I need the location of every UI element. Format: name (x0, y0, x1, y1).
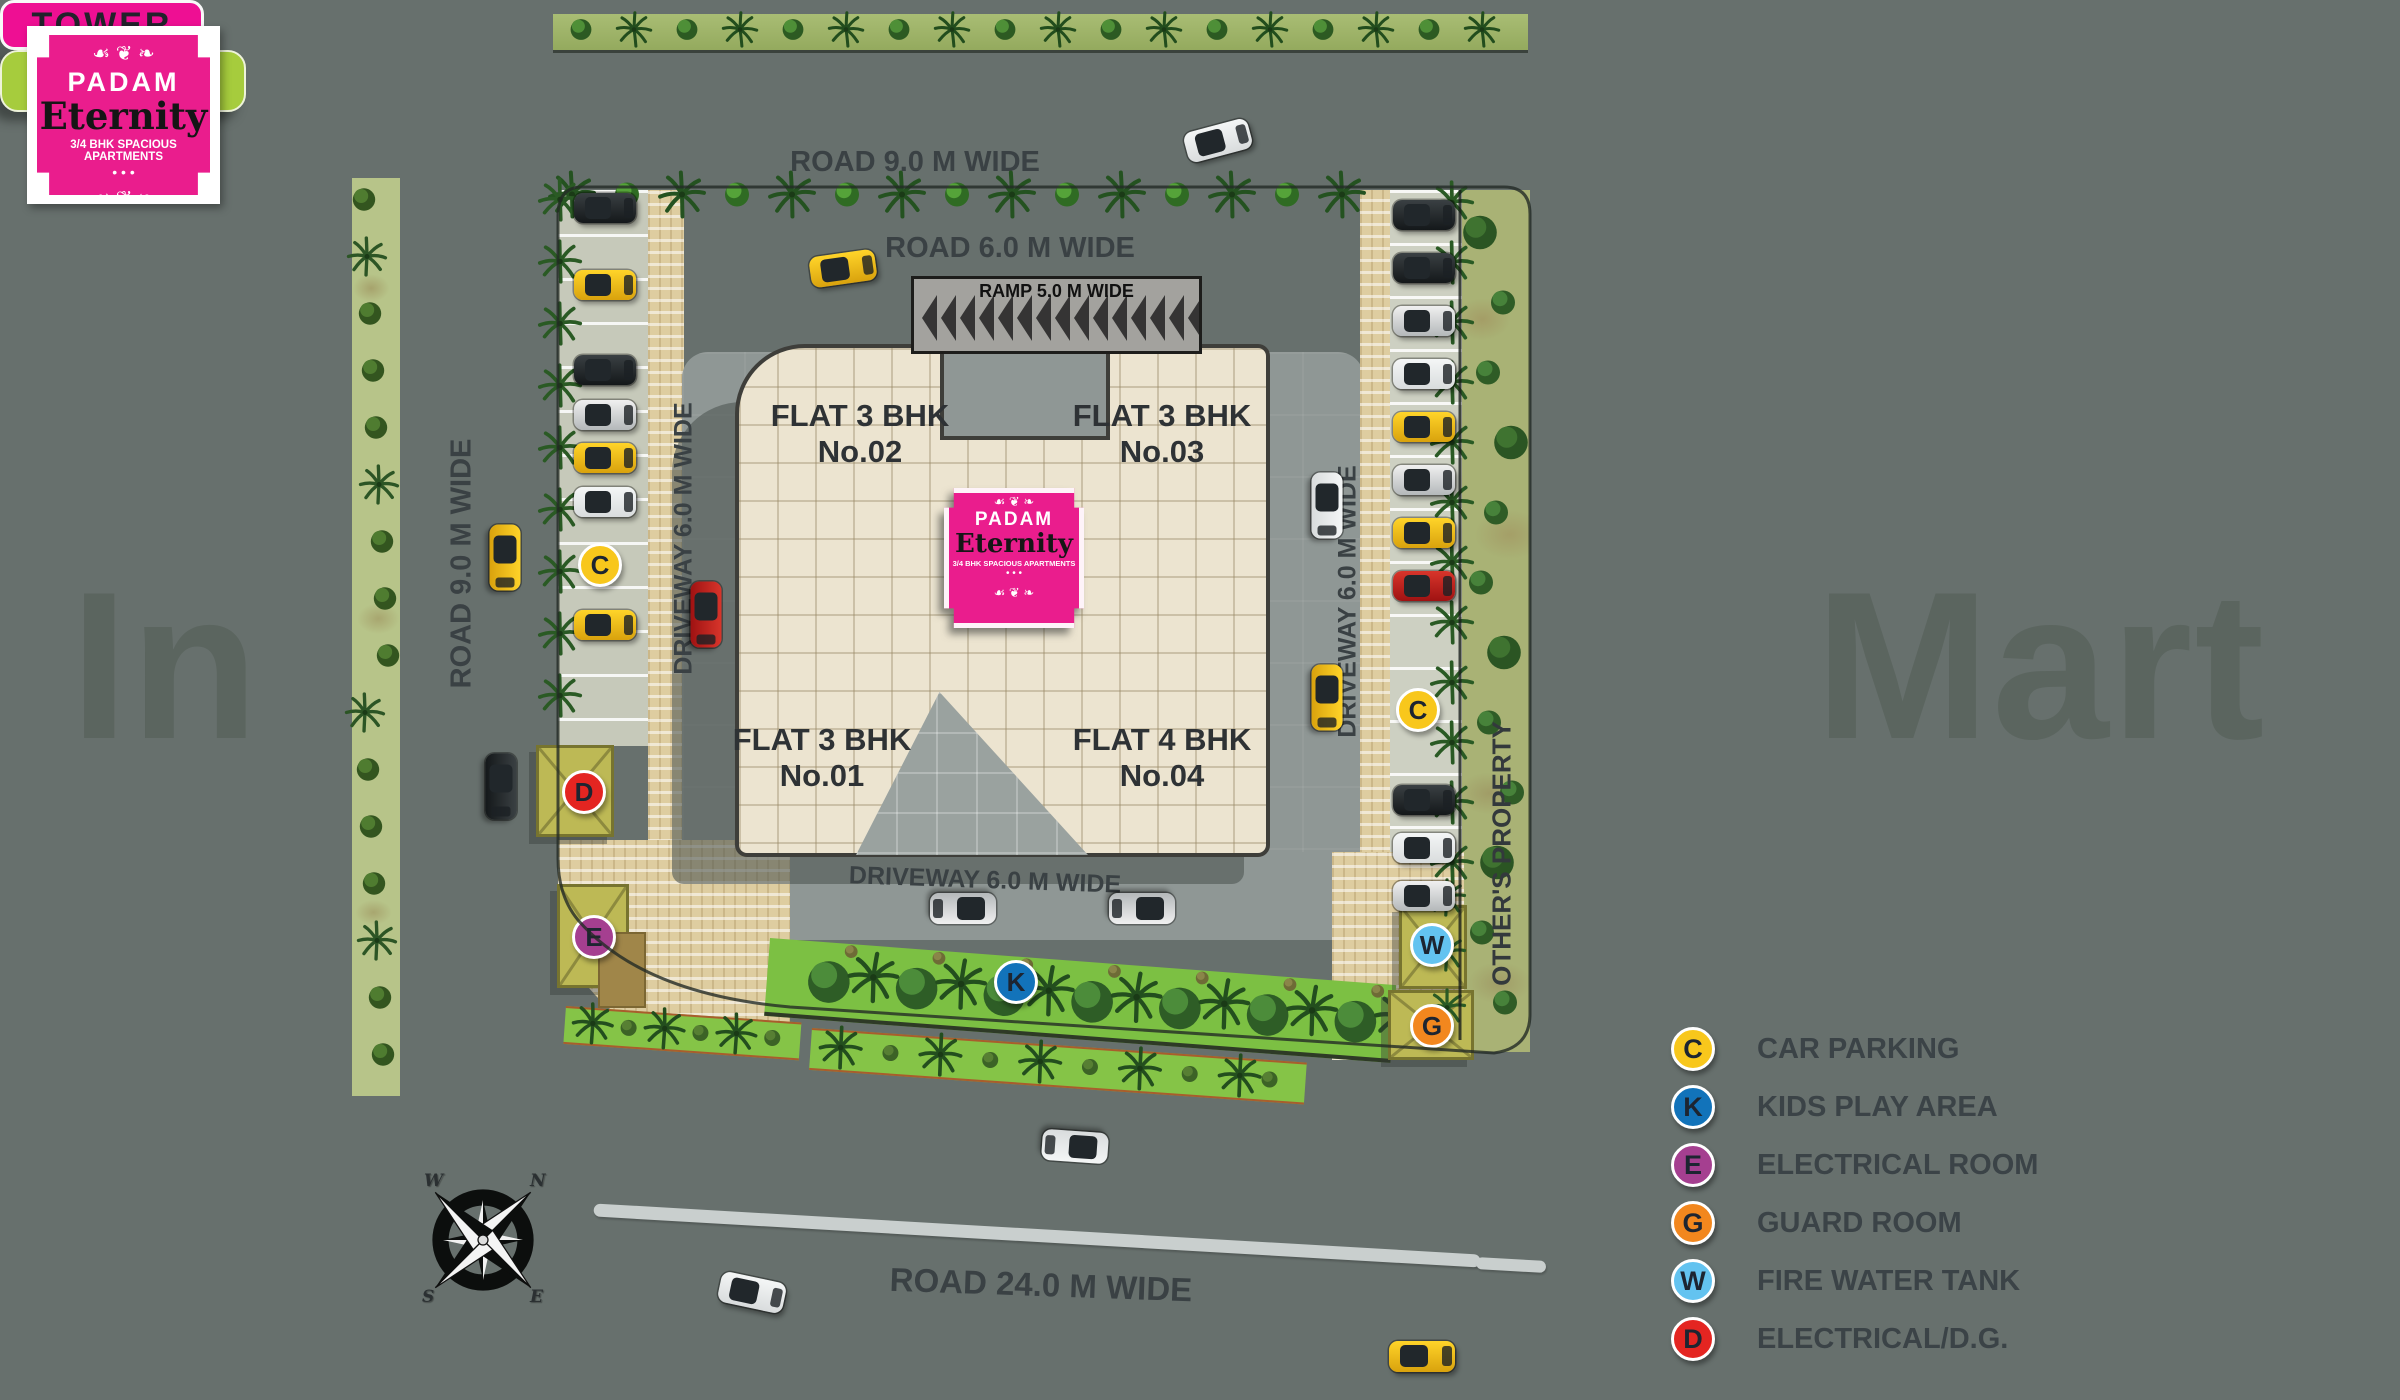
bush-icon (1481, 498, 1511, 533)
legend-dot-W: W (1671, 1259, 1715, 1303)
car (486, 753, 517, 819)
car (1393, 571, 1455, 601)
legend-label: ELECTRICAL/D.G. (1757, 1323, 2008, 1356)
compass-north: N (530, 1171, 546, 1191)
bush-icon (1459, 212, 1501, 259)
bush-icon (1281, 976, 1299, 998)
bush-icon (1193, 969, 1211, 991)
palm-tree-icon (1215, 1051, 1264, 1105)
bush-icon (1416, 17, 1442, 48)
car (1109, 893, 1175, 924)
map-marker-C: C (1396, 688, 1440, 732)
ornament-icon: ☙ ❦ ❧ (944, 495, 1084, 509)
logo-name: Eternity (37, 98, 210, 136)
bush-icon (1369, 983, 1387, 1005)
car (1393, 412, 1455, 442)
palm-tree-icon (1251, 11, 1289, 54)
bush-icon (357, 813, 385, 846)
bush-icon (832, 180, 862, 215)
palm-tree-icon (1195, 975, 1253, 1038)
car (1393, 359, 1455, 389)
map-marker-D: D (562, 770, 606, 814)
bush-icon (618, 1017, 640, 1043)
car (1312, 472, 1343, 538)
legend-label: FIRE WATER TANK (1757, 1265, 2020, 1298)
road-bottom-label: ROAD 24.0 M WIDE (870, 1260, 1211, 1310)
bush-icon (879, 1042, 901, 1068)
palm-tree-icon (344, 692, 386, 739)
bush-icon (761, 1027, 783, 1053)
palm-tree-icon (1107, 968, 1165, 1031)
bush-icon (842, 943, 860, 965)
map-marker-K: K (994, 960, 1038, 1004)
car (574, 487, 636, 517)
bush-icon (1098, 17, 1124, 48)
bush-icon (1466, 568, 1496, 603)
car (1393, 881, 1455, 911)
palm-tree-icon (1207, 170, 1257, 225)
map-marker-W: W (1410, 923, 1454, 967)
flat-03-label: FLAT 3 BHKNo.03 (1052, 398, 1272, 469)
car (1393, 306, 1455, 336)
palm-tree-icon (615, 11, 653, 54)
legend-dot-C: C (1671, 1027, 1715, 1071)
bush-icon (888, 961, 944, 1022)
palm-tree-icon (1097, 170, 1147, 225)
bush-icon (1258, 1069, 1280, 1095)
bush-icon (722, 180, 752, 215)
palm-tree-icon (816, 1023, 865, 1077)
palm-tree-icon (1283, 981, 1341, 1044)
bush-icon (801, 954, 857, 1015)
car (574, 400, 636, 430)
bush-icon (568, 17, 594, 48)
bush-icon (354, 756, 382, 789)
legend-label: CAR PARKING (1757, 1033, 1959, 1066)
road-top-label: ROAD 9.0 M WIDE (760, 146, 1070, 179)
bush-icon (1490, 422, 1532, 469)
palm-tree-icon (1145, 11, 1183, 54)
palm-tree-icon (1357, 11, 1395, 54)
car (1393, 785, 1455, 815)
car (574, 355, 636, 385)
ornament-icon: ☙ ❦ ❧ (37, 188, 210, 210)
west-landscape-strip (352, 178, 400, 1096)
north-landscape-strip (553, 14, 1528, 53)
bush-icon (1052, 180, 1082, 215)
road-median-line (593, 1203, 1480, 1267)
palm-tree-icon (1115, 1044, 1164, 1098)
bush-icon (359, 357, 387, 390)
logo-brand: PADAM (944, 509, 1084, 531)
legend-label: ELECTRICAL ROOM (1757, 1149, 2038, 1182)
car (1393, 518, 1455, 548)
car (574, 193, 636, 223)
palm-tree-icon (827, 11, 865, 54)
bush-icon (1106, 963, 1124, 985)
bush-icon (1272, 180, 1302, 215)
bush-icon (1204, 17, 1230, 48)
road-inner-label: ROAD 6.0 M WIDE (855, 232, 1165, 265)
palm-tree-icon (933, 11, 971, 54)
car (1393, 833, 1455, 863)
car (1312, 664, 1343, 730)
company-logo: ☙ ❦ ❧ PADAM Eternity 3/4 BHK SPACIOUS AP… (27, 26, 220, 204)
legend-item-W: WFIRE WATER TANK (1671, 1259, 2020, 1303)
legend-dot-K: K (1671, 1085, 1715, 1129)
bush-icon (780, 17, 806, 48)
bush-icon (886, 17, 912, 48)
bush-icon (371, 585, 399, 618)
palm-tree-icon (1039, 11, 1077, 54)
compass-west: W (424, 1171, 443, 1191)
legend-label: KIDS PLAY AREA (1757, 1091, 1998, 1124)
bush-icon (356, 300, 384, 333)
legend-item-E: EELECTRICAL ROOM (1671, 1143, 2038, 1187)
car (1393, 200, 1455, 230)
compass-rose-icon: W N S E (408, 1165, 558, 1315)
bush-icon (979, 1049, 1001, 1075)
legend-item-K: KKIDS PLAY AREA (1671, 1085, 1998, 1129)
bush-icon (1162, 180, 1192, 215)
legend-item-D: DELECTRICAL/D.G. (1671, 1317, 2008, 1361)
bush-icon (992, 17, 1018, 48)
map-marker-C: C (578, 543, 622, 587)
palm-tree-icon (932, 955, 990, 1018)
bush-icon (369, 1041, 397, 1074)
road-left-label: ROAD 9.0 M WIDE (446, 409, 479, 719)
road-median-dash (1476, 1257, 1547, 1273)
bush-icon (1483, 632, 1525, 679)
map-marker-G: G (1410, 1004, 1454, 1048)
car (1393, 253, 1455, 283)
bush-icon (368, 528, 396, 561)
paver-walkway-right (1360, 190, 1390, 862)
basement-ramp: RAMP 5.0 M WIDE (911, 276, 1202, 354)
logo-name: Eternity (944, 531, 1084, 557)
bush-icon (1152, 981, 1208, 1042)
flat-01-label: FLAT 3 BHKNo.01 (712, 722, 932, 793)
palm-tree-icon (1463, 11, 1501, 54)
palm-tree-icon (358, 464, 400, 511)
car (691, 581, 722, 647)
ramp-label: RAMP 5.0 M WIDE (914, 281, 1199, 302)
car (716, 1270, 787, 1314)
map-marker-E: E (572, 915, 616, 959)
bush-icon (930, 950, 948, 972)
others-property-label: OTHER'S PROPERTY (1487, 704, 1518, 1004)
car (808, 248, 878, 288)
car (1041, 1128, 1109, 1164)
bush-icon (1064, 974, 1120, 1035)
logo-tagline: 3/4 BHK SPACIOUS APARTMENTS (944, 559, 1084, 568)
car (574, 610, 636, 640)
ornament-icon: ☙ ❦ ❧ (944, 586, 1084, 600)
car (1393, 465, 1455, 495)
flat-02-label: FLAT 3 BHKNo.02 (750, 398, 970, 469)
project-logo-badge: ☙ ❦ ❧ PADAM Eternity 3/4 BHK SPACIOUS AP… (944, 488, 1084, 628)
ornament-icon: ☙ ❦ ❧ (37, 43, 210, 65)
palm-tree-icon (721, 11, 759, 54)
palm-tree-icon (1015, 1037, 1064, 1091)
car (930, 893, 996, 924)
site-plan-canvas: In Mart RAMP 5.0 M WIDE FLAT 3 BHKNo.02 … (0, 0, 2400, 1400)
bush-icon (366, 984, 394, 1017)
bush-icon (1473, 358, 1503, 393)
legend-label: GUARD ROOM (1757, 1207, 1962, 1240)
compass-east: E (530, 1287, 543, 1307)
car (574, 270, 636, 300)
bush-icon (1239, 987, 1295, 1048)
flat-04-label: FLAT 4 BHKNo.04 (1052, 722, 1272, 793)
bush-icon (942, 180, 972, 215)
bush-icon (1179, 1063, 1201, 1089)
palm-tree-icon (844, 948, 902, 1011)
car (490, 524, 521, 590)
car (574, 443, 636, 473)
legend-item-G: GGUARD ROOM (1671, 1201, 1962, 1245)
bush-icon (360, 870, 388, 903)
palm-tree-icon (916, 1030, 965, 1084)
bush-icon (689, 1022, 711, 1048)
bush-icon (350, 186, 378, 219)
watermark-text: Mart (1815, 545, 2266, 787)
palm-tree-icon (346, 236, 388, 283)
bush-icon (674, 17, 700, 48)
legend-dot-D: D (1671, 1317, 1715, 1361)
logo-dots: • • • (944, 568, 1084, 579)
bush-icon (1310, 17, 1336, 48)
legend-dot-G: G (1671, 1201, 1715, 1245)
watermark-text: In (70, 545, 261, 787)
car (1389, 1341, 1455, 1372)
palm-tree-icon (356, 920, 398, 967)
bush-icon (374, 642, 402, 675)
logo-dots: • • • (37, 164, 210, 180)
legend-item-C: CCAR PARKING (1671, 1027, 1959, 1071)
car (1182, 116, 1254, 163)
bush-icon (1327, 994, 1383, 1055)
compass-south: S (422, 1287, 434, 1307)
bush-icon (1079, 1056, 1101, 1082)
legend-dot-E: E (1671, 1143, 1715, 1187)
bush-icon (1488, 288, 1518, 323)
bush-icon (362, 414, 390, 447)
logo-tagline: 3/4 BHK SPACIOUS APARTMENTS (37, 139, 210, 163)
